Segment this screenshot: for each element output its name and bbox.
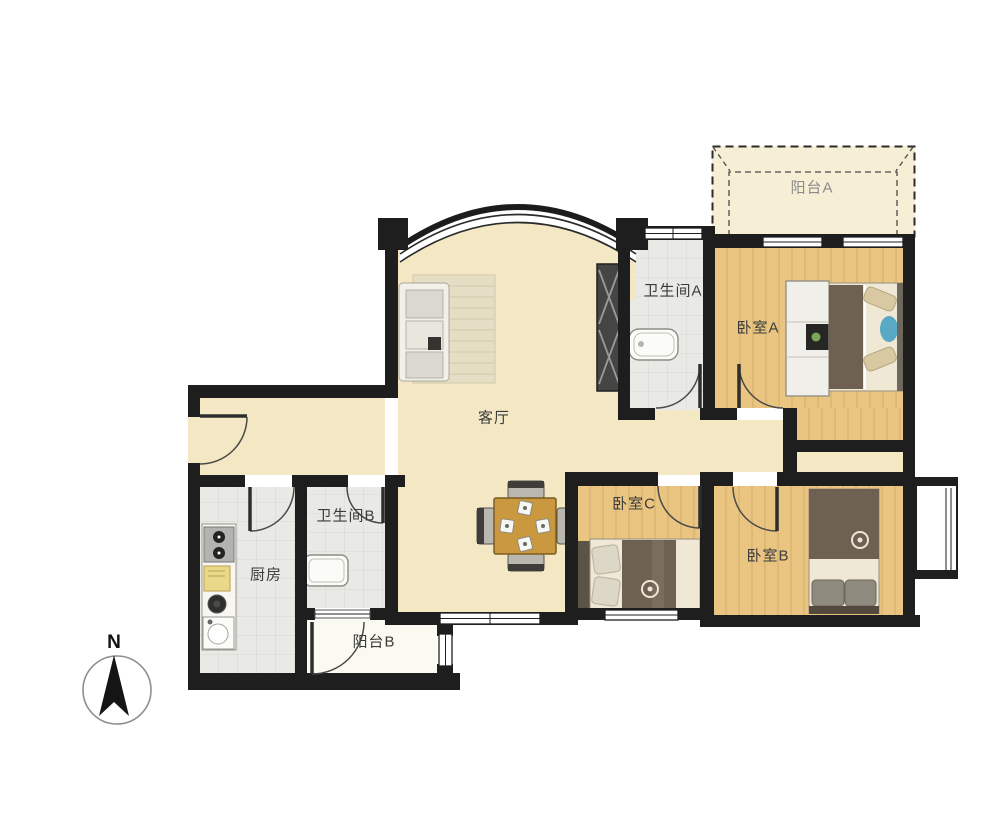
room-living-corridor-b-floor: [797, 452, 903, 472]
north-arrow: [83, 655, 151, 724]
room-living-corridor-a-floor: [703, 420, 783, 472]
room-bedroom-b-floor: [714, 486, 903, 615]
room-label-balcony-b: 阳台B: [352, 631, 395, 652]
room-label-bedroom-c: 卧室C: [612, 493, 656, 514]
bay-window: [916, 478, 957, 578]
room-label-balcony-a: 阳台A: [790, 177, 833, 198]
room-label-kitchen: 厨房: [250, 564, 282, 585]
room-label-bathroom-a: 卫生间A: [643, 280, 702, 301]
room-label-living: 客厅: [478, 407, 510, 428]
room-label-bedroom-b: 卧室B: [746, 545, 789, 566]
room-living-hall-floor: [200, 398, 385, 475]
room-living-lower-floor: [398, 475, 565, 612]
room-bedroom-a-floor-ext: [797, 408, 903, 440]
north-label: N: [107, 632, 121, 654]
room-label-bedroom-a: 卧室A: [736, 317, 779, 338]
room-bathroom-a-floor: [630, 240, 703, 410]
room-label-bathroom-b: 卫生间B: [316, 505, 375, 526]
entry-threshold: [188, 417, 200, 463]
floor-plan: 客厅 卫生间A 卧室A 阳台A 卫生间B 厨房 阳台B 卧室C 卧室B N: [0, 0, 1000, 820]
